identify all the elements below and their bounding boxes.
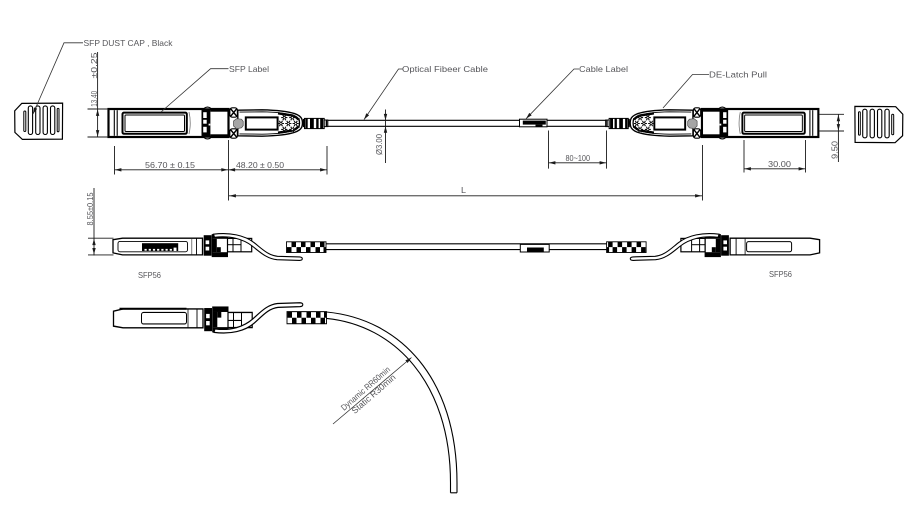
svg-text:SFP56: SFP56: [769, 269, 792, 279]
svg-text:8.55±0.15: 8.55±0.15: [85, 192, 95, 225]
svg-text:56.70 ± 0.15: 56.70 ± 0.15: [145, 160, 195, 170]
svg-text:9.50: 9.50: [830, 141, 840, 159]
svg-text:13.40: 13.40: [89, 91, 99, 107]
svg-text:Optical Fibeer Cable: Optical Fibeer Cable: [402, 64, 488, 74]
svg-text:SFP DUST CAP , Black: SFP DUST CAP , Black: [84, 38, 174, 48]
svg-text:±0.25: ±0.25: [89, 52, 99, 78]
svg-text:Ø3.00: Ø3.00: [374, 134, 384, 155]
svg-text:L: L: [461, 185, 466, 195]
svg-text:30.00: 30.00: [768, 159, 791, 169]
svg-text:48.20 ± 0.50: 48.20 ± 0.50: [236, 160, 284, 170]
svg-text:SFP Label: SFP Label: [229, 64, 269, 74]
svg-text:SFP56: SFP56: [138, 270, 161, 280]
svg-text:DE-Latch Pull: DE-Latch Pull: [709, 70, 767, 80]
svg-text:Cable Label: Cable Label: [579, 64, 628, 74]
svg-text:80~100: 80~100: [566, 153, 591, 163]
